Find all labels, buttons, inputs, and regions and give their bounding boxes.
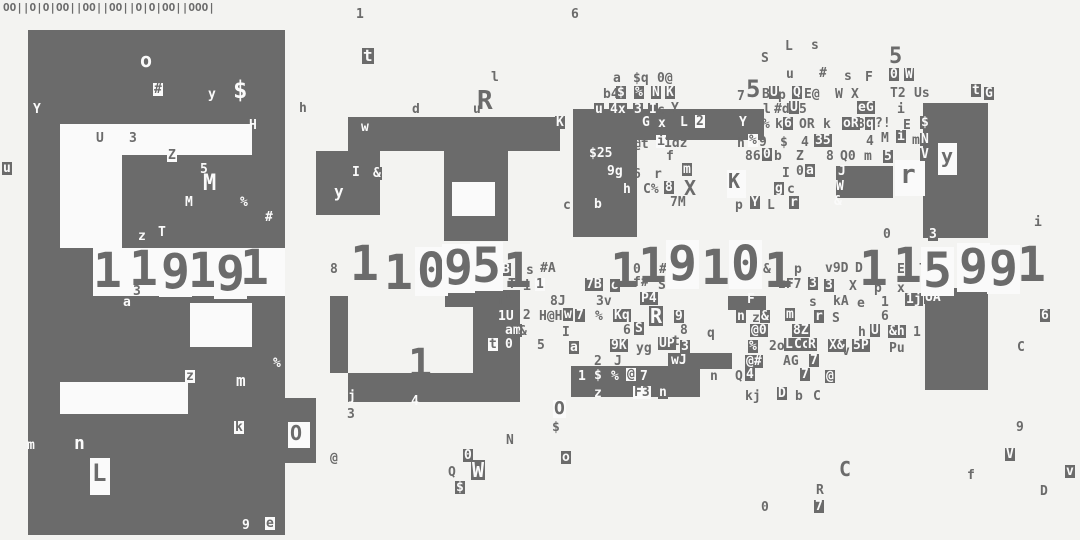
glyph-w: n <box>74 435 85 453</box>
glyph-g: 1 <box>610 247 639 296</box>
glyph-p: 6 <box>633 168 641 181</box>
glyph-p: kA <box>833 295 849 308</box>
glyph-g: 1 <box>384 249 413 298</box>
glyph-p: 5 <box>746 77 760 101</box>
glyph-c: t <box>971 84 981 97</box>
glyph-c: 3 <box>808 277 818 290</box>
glyph-c: % <box>748 340 758 353</box>
gray-block <box>60 248 93 296</box>
glyph-p: 1 <box>913 326 921 339</box>
glyph-p: c <box>657 104 665 117</box>
glyph-c: i <box>896 130 906 143</box>
glyph-p: D <box>1040 485 1048 498</box>
glyph-g: 1 <box>1017 241 1046 290</box>
glyph-p: q <box>707 327 715 340</box>
glyph-g: 1 <box>701 244 730 293</box>
glyph-p: 86 <box>745 150 761 163</box>
glyph-c: 9 <box>674 310 684 323</box>
glyph-w: J <box>838 165 846 178</box>
glyph-g: 1 <box>129 245 158 294</box>
glyph-c: % <box>634 86 644 99</box>
glyph-w: z <box>594 387 602 400</box>
glyph-p: 5 <box>889 46 902 68</box>
glyph-p: 2 <box>594 355 602 368</box>
glyph-p: p <box>778 89 786 102</box>
glyph-c: 6 <box>1040 309 1050 322</box>
glyph-p: v <box>842 345 850 358</box>
glyph-p: i <box>1034 216 1042 229</box>
glyph-wc: % <box>748 134 758 147</box>
glyph-w: G <box>642 116 650 129</box>
glyph-p: h <box>299 102 307 115</box>
glyph-p: m <box>912 134 920 147</box>
glyph-p: C <box>1017 341 1025 354</box>
glyph-c: & <box>760 310 770 323</box>
glyph-p: y <box>941 146 953 166</box>
glyph-wc: e <box>265 517 275 530</box>
glyph-p: W <box>835 88 843 101</box>
glyph-w: h <box>623 183 631 196</box>
white-block <box>60 124 252 155</box>
glyph-c: 3 <box>680 340 690 353</box>
glyph-p: F <box>865 71 873 84</box>
glyph-w: T <box>158 226 166 239</box>
glyph-p: Q <box>735 370 743 383</box>
glyph-w: % <box>240 196 248 209</box>
glyph-w: wJ <box>671 354 687 367</box>
glyph-p: & <box>519 325 527 338</box>
glyph-g: 1 <box>503 247 532 296</box>
glyph-w: % <box>273 357 281 370</box>
glyph-c: Q <box>792 86 802 99</box>
glyph-wc: @ <box>626 368 636 381</box>
gray-block <box>316 151 380 215</box>
glyph-p: U <box>96 132 104 145</box>
glyph-c: &h <box>888 325 906 338</box>
glyph-c: 6 <box>783 117 793 130</box>
glyph-c: 4x <box>609 103 627 116</box>
glyph-c: U <box>789 101 799 114</box>
glyph-c: K <box>665 86 675 99</box>
glyph-w: W <box>836 180 844 193</box>
glyph-p: S <box>761 52 769 65</box>
glyph-c: 35 <box>814 134 832 147</box>
glyph-w: M <box>185 196 193 209</box>
glyph-p: c <box>563 199 571 212</box>
glyph-c: v <box>1065 465 1075 478</box>
glyph-w: 4 <box>411 395 419 408</box>
glyph-p: 8 <box>330 263 338 276</box>
glyph-p: % <box>762 118 770 131</box>
glyph-w: o <box>140 50 152 70</box>
glyph-c: 0 <box>504 338 514 351</box>
glyph-w: $25 <box>589 147 612 160</box>
glyph-c: r <box>789 196 799 209</box>
glyph-w: y <box>208 88 216 101</box>
glyph-p: K <box>728 171 740 191</box>
glyph-w: 9 <box>242 519 250 532</box>
glyph-g: 1 <box>188 247 217 296</box>
glyph-p: u <box>786 68 794 81</box>
glyph-c: 5 <box>883 150 893 163</box>
glyph-p: T2 <box>890 87 906 100</box>
glyph-p: b <box>774 150 782 163</box>
glyph-p: r <box>900 162 916 189</box>
glyph-p: Z <box>796 150 804 163</box>
glyph-w: b <box>594 198 602 211</box>
glyph-p: v9D <box>825 262 848 275</box>
glyph-c: w <box>563 308 573 321</box>
glyph-w: $ <box>233 78 247 102</box>
glyph-p: 5 <box>799 103 807 116</box>
glyph-g: 1 <box>764 247 793 296</box>
glyph-wc: 1 <box>535 278 545 291</box>
glyph-p: p <box>794 263 802 276</box>
glyph-c: u <box>2 162 12 175</box>
glyph-w: y <box>334 184 344 200</box>
glyph-p: $ <box>780 136 788 149</box>
glyph-p: X <box>849 280 857 293</box>
white-block <box>60 382 188 414</box>
glyph-p: Q0 <box>840 150 856 163</box>
glyph-w: m <box>236 373 246 389</box>
glyph-c: eG <box>857 101 875 114</box>
glyph-p: J <box>614 355 622 368</box>
glyph-p: M <box>881 132 889 145</box>
glyph-p: 4 <box>801 136 809 149</box>
glyph-p: 0 <box>796 165 804 178</box>
glyph-w: 1 <box>578 370 586 383</box>
glyph-wb: 9 <box>957 243 990 292</box>
glyph-p: Us <box>914 87 930 100</box>
glyph-g: 1 <box>350 240 379 289</box>
gray-block <box>348 117 560 151</box>
glyph-p: a <box>613 72 621 85</box>
glyph-c: 3 <box>928 228 938 241</box>
glyph-p: f <box>967 469 975 482</box>
glyph-p: 5 <box>537 339 545 352</box>
glyph-c: Kq <box>613 309 631 322</box>
glyph-w: 9g <box>607 165 623 178</box>
white-block <box>190 303 252 347</box>
glyph-p: 4 <box>866 135 874 148</box>
glyph-p: 7M <box>670 196 686 209</box>
glyph-wc: k <box>234 421 244 434</box>
glyph-p: l <box>763 103 771 116</box>
gray-block <box>573 109 637 237</box>
glyph-p: I <box>782 167 790 180</box>
glyph-p: d <box>412 103 420 116</box>
glyph-w: F <box>747 293 755 306</box>
glyph-c: U <box>870 324 880 337</box>
glyph-p: 6 <box>571 8 579 21</box>
gray-block <box>330 296 348 373</box>
glyph-c: 1U <box>497 310 515 323</box>
glyph-c: R <box>807 338 817 351</box>
white-block <box>60 155 122 248</box>
glyph-p: 2o <box>769 340 785 353</box>
glyph-p: S <box>832 312 840 325</box>
glyph-c: 8Z <box>792 324 810 337</box>
glyph-g: 1 <box>859 245 888 294</box>
glyph-c: @ <box>825 370 835 383</box>
glyph-p: 1 <box>356 8 364 21</box>
glyph-p: h <box>737 137 745 150</box>
header-barcode-text: OO||O|O|OO||OO||OO||O|O|OO||OOO| <box>3 1 215 14</box>
glyph-p: 7 <box>737 90 745 103</box>
glyph-p: s <box>811 39 819 52</box>
glyph-p: f <box>666 150 674 163</box>
glyph-c: $ <box>455 481 465 494</box>
glyph-c: G <box>984 87 994 100</box>
glyph-g: 1 <box>893 242 922 291</box>
glyph-p: 8 <box>826 150 834 163</box>
glyph-c: m <box>785 308 795 321</box>
glyph-c: 3 <box>633 103 643 116</box>
glyph-g: 1 <box>408 344 432 385</box>
glyph-c: K <box>555 116 565 129</box>
glyph-c: $ <box>920 116 930 129</box>
glyph-p: kj <box>745 390 761 403</box>
glyph-p: 3 <box>129 132 137 145</box>
glyph-p: $ <box>552 421 560 434</box>
glyph-wb: 0 <box>729 240 762 289</box>
glyph-c: m <box>682 163 692 176</box>
glyph-p: #d <box>774 103 790 116</box>
glyph-p: p <box>735 199 743 212</box>
glyph-wc: 2 <box>695 115 705 128</box>
glyph-c: 7 <box>814 500 824 513</box>
glyph-w: & <box>834 195 842 208</box>
glyph-p: #A <box>540 262 556 275</box>
glyph-p: |2 <box>515 309 531 322</box>
glyph-c: q <box>865 117 875 130</box>
glyph-c: a <box>805 164 815 177</box>
glyph-p: t <box>672 335 680 348</box>
glyph-c: a <box>569 341 579 354</box>
glyph-p: r <box>654 168 662 181</box>
glyph-c: 8 <box>664 181 674 194</box>
glyph-wb: 9 <box>987 245 1020 294</box>
glyph-w: I <box>352 166 360 179</box>
glitch-map-screen: OO||O|O|OO||OO||OO||O|O|OO||OOO| 16o#y$Y… <box>0 0 1080 540</box>
glyph-c: 7 <box>800 368 810 381</box>
gray-block <box>252 124 285 248</box>
glyph-c: o <box>561 451 571 464</box>
glyph-c: 4 <box>745 368 755 381</box>
glyph-p: L <box>92 461 106 485</box>
glyph-p: 6 <box>623 324 631 337</box>
glyph-g: 1 <box>240 244 269 293</box>
glyph-p: 1 <box>881 296 889 309</box>
glyph-c: 1j <box>905 293 923 306</box>
glyph-p: b <box>795 390 803 403</box>
glyph-p: L <box>785 40 793 53</box>
glyph-c: 7 <box>575 309 585 322</box>
glyph-p: 8 <box>857 118 865 131</box>
glyph-wc: Z <box>167 149 177 162</box>
glyph-c: R <box>649 306 663 326</box>
glyph-p: n <box>710 370 718 383</box>
glyph-p: s <box>844 70 852 83</box>
glyph-wb: 9 <box>159 248 192 297</box>
glyph-w: m <box>27 439 35 452</box>
glyph-c: W <box>471 460 485 480</box>
glyph-p: Q <box>448 466 456 479</box>
glyph-w: x <box>658 117 666 130</box>
glyph-p: 3 <box>347 408 355 421</box>
glyph-c: W <box>904 68 914 81</box>
glyph-w: $ <box>594 369 602 382</box>
glyph-g: 1 <box>93 247 122 296</box>
glyph-c: 7 <box>809 354 819 367</box>
glyph-p: C% <box>643 183 659 196</box>
glyph-wc: # <box>153 83 163 96</box>
glyph-c: 0 <box>762 148 772 161</box>
glyph-p: 0 <box>761 501 769 514</box>
glyph-w: H <box>249 119 257 132</box>
glyph-p: 8 <box>680 324 688 337</box>
glyph-p: u <box>473 103 481 116</box>
glyph-w: w <box>361 121 369 134</box>
glyph-wb: 5 <box>470 242 503 291</box>
glyph-p: s <box>809 296 817 309</box>
glyph-w: j <box>348 390 356 403</box>
glyph-w: 7 <box>640 370 648 383</box>
glyph-wc: t <box>488 338 498 351</box>
glyph-c: n <box>658 386 668 399</box>
glyph-p: ?! <box>875 117 891 130</box>
glyph-p: C <box>839 459 851 479</box>
white-block <box>452 182 495 216</box>
glyph-p: i <box>897 103 905 116</box>
glyph-p: Pu <box>889 342 905 355</box>
glyph-p: 6 <box>881 310 889 323</box>
glyph-p: R <box>816 484 824 497</box>
glyph-p: yg <box>636 342 652 355</box>
glyph-g: 1 <box>638 242 667 291</box>
glyph-p: e <box>857 297 865 310</box>
glyph-p: C <box>813 390 821 403</box>
glyph-c: N <box>651 86 661 99</box>
glyph-w: Y <box>739 116 747 129</box>
glyph-w: % <box>611 370 619 383</box>
glyph-wc: F3 <box>633 386 651 399</box>
glyph-c: V <box>1005 448 1015 461</box>
glyph-p: m <box>864 150 872 163</box>
glyph-c: Y <box>750 196 760 209</box>
glyph-c: 5P <box>852 339 870 352</box>
glyph-c: u <box>594 103 604 116</box>
glyph-c: n <box>736 310 746 323</box>
glyph-c: 0 <box>889 68 899 81</box>
glyph-c: & <box>372 167 382 180</box>
glyph-c: S <box>634 322 644 335</box>
glyph-p: AG <box>783 355 799 368</box>
glyph-p: 0@ <box>657 72 673 85</box>
glyph-p: l <box>491 71 499 84</box>
glyph-w: M <box>203 173 216 195</box>
glyph-p: E@ <box>804 88 820 101</box>
glyph-p: $q <box>633 72 649 85</box>
glyph-wb: 5 <box>921 247 954 296</box>
glyph-c: 9K <box>610 339 628 352</box>
glyph-c: 7B <box>585 278 603 291</box>
glyph-p: N <box>506 434 514 447</box>
glyph-c: N <box>920 133 930 146</box>
glyph-c: g <box>774 182 784 195</box>
glyph-p: I <box>562 326 570 339</box>
glyph-p: 0 <box>883 228 891 241</box>
glyph-p: H@H <box>539 310 562 323</box>
glyph-p: L <box>767 199 775 212</box>
glyph-p: 9 <box>1016 421 1024 434</box>
glyph-p: k <box>775 118 783 131</box>
glyph-p: # <box>819 67 827 80</box>
glyph-c: a <box>122 296 132 309</box>
glyph-wc: O <box>553 400 566 418</box>
gray-block <box>28 414 285 535</box>
glyph-w: Y <box>33 103 41 116</box>
glyph-wb: 9 <box>666 240 699 289</box>
glyph-p: k <box>823 118 831 131</box>
glyph-c: $ <box>616 86 626 99</box>
glyph-c: @0 <box>750 324 768 337</box>
glyph-p: @t <box>633 138 649 151</box>
glyph-c: t <box>362 48 374 64</box>
glyph-wc: z <box>185 370 195 383</box>
glyph-c: D <box>777 387 787 400</box>
glyph-p: @ <box>330 452 338 465</box>
glyph-c: 3 <box>824 279 834 292</box>
glyph-w: # <box>265 211 273 224</box>
glyph-p: Y <box>671 102 679 115</box>
glyph-c: V <box>920 148 930 161</box>
glyph-p: % <box>595 310 603 323</box>
glyph-w: L <box>680 116 688 129</box>
glyph-p: O <box>290 423 302 443</box>
glyph-p: OR <box>799 118 815 131</box>
glyph-c: r <box>814 310 824 323</box>
